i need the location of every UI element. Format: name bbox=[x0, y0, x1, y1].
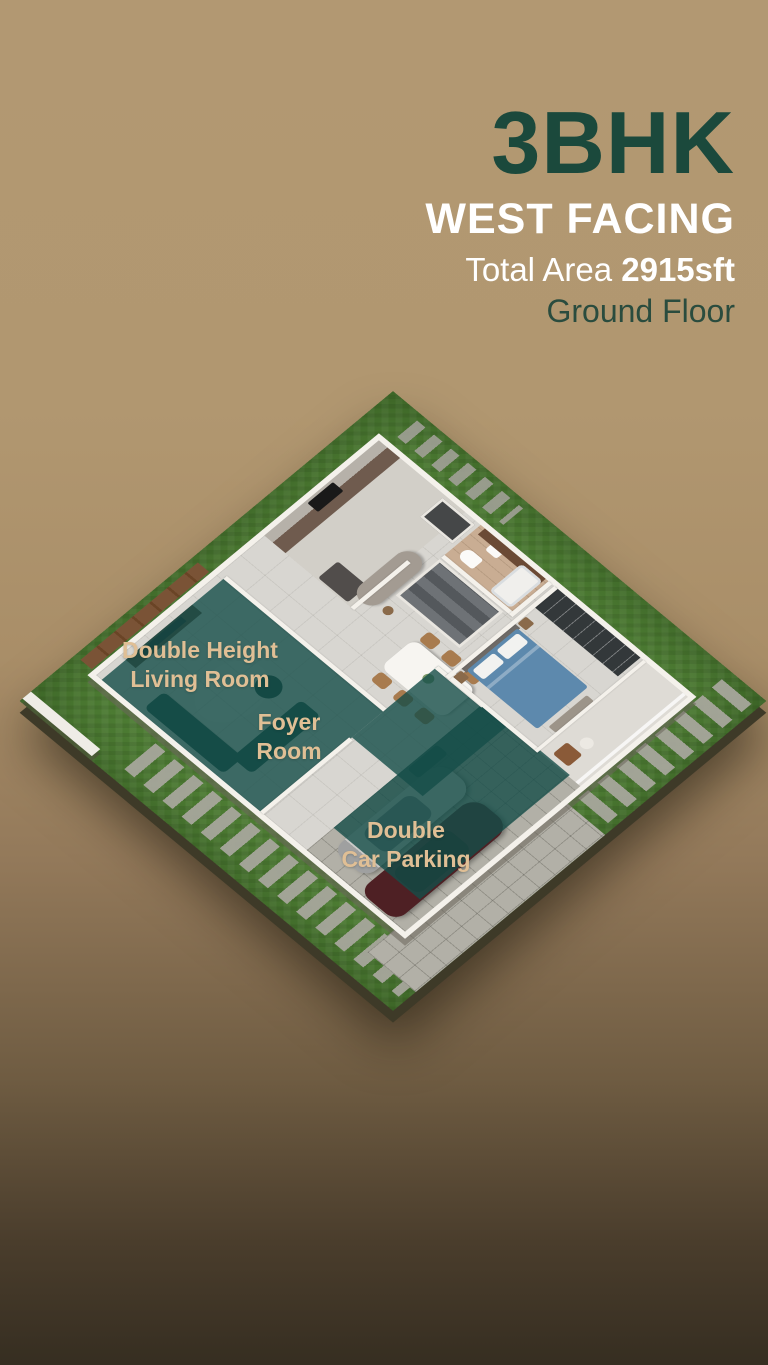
floor-plan-poster: 3BHK WEST FACING Total Area 2915sft Grou… bbox=[0, 0, 768, 1365]
compound-wall bbox=[22, 692, 100, 757]
plot-grass bbox=[20, 391, 767, 1011]
title-block: 3BHK WEST FACING Total Area 2915sft Grou… bbox=[425, 99, 735, 330]
facing-heading: WEST FACING bbox=[425, 195, 735, 244]
unit-type-heading: 3BHK bbox=[425, 99, 735, 187]
bar-stool bbox=[380, 604, 396, 617]
total-area-line: Total Area 2915sft bbox=[425, 251, 735, 289]
total-area-value: 2915sft bbox=[621, 251, 735, 288]
total-area-label: Total Area bbox=[465, 251, 612, 288]
house-footprint bbox=[88, 433, 697, 938]
floor-name: Ground Floor bbox=[425, 293, 735, 330]
